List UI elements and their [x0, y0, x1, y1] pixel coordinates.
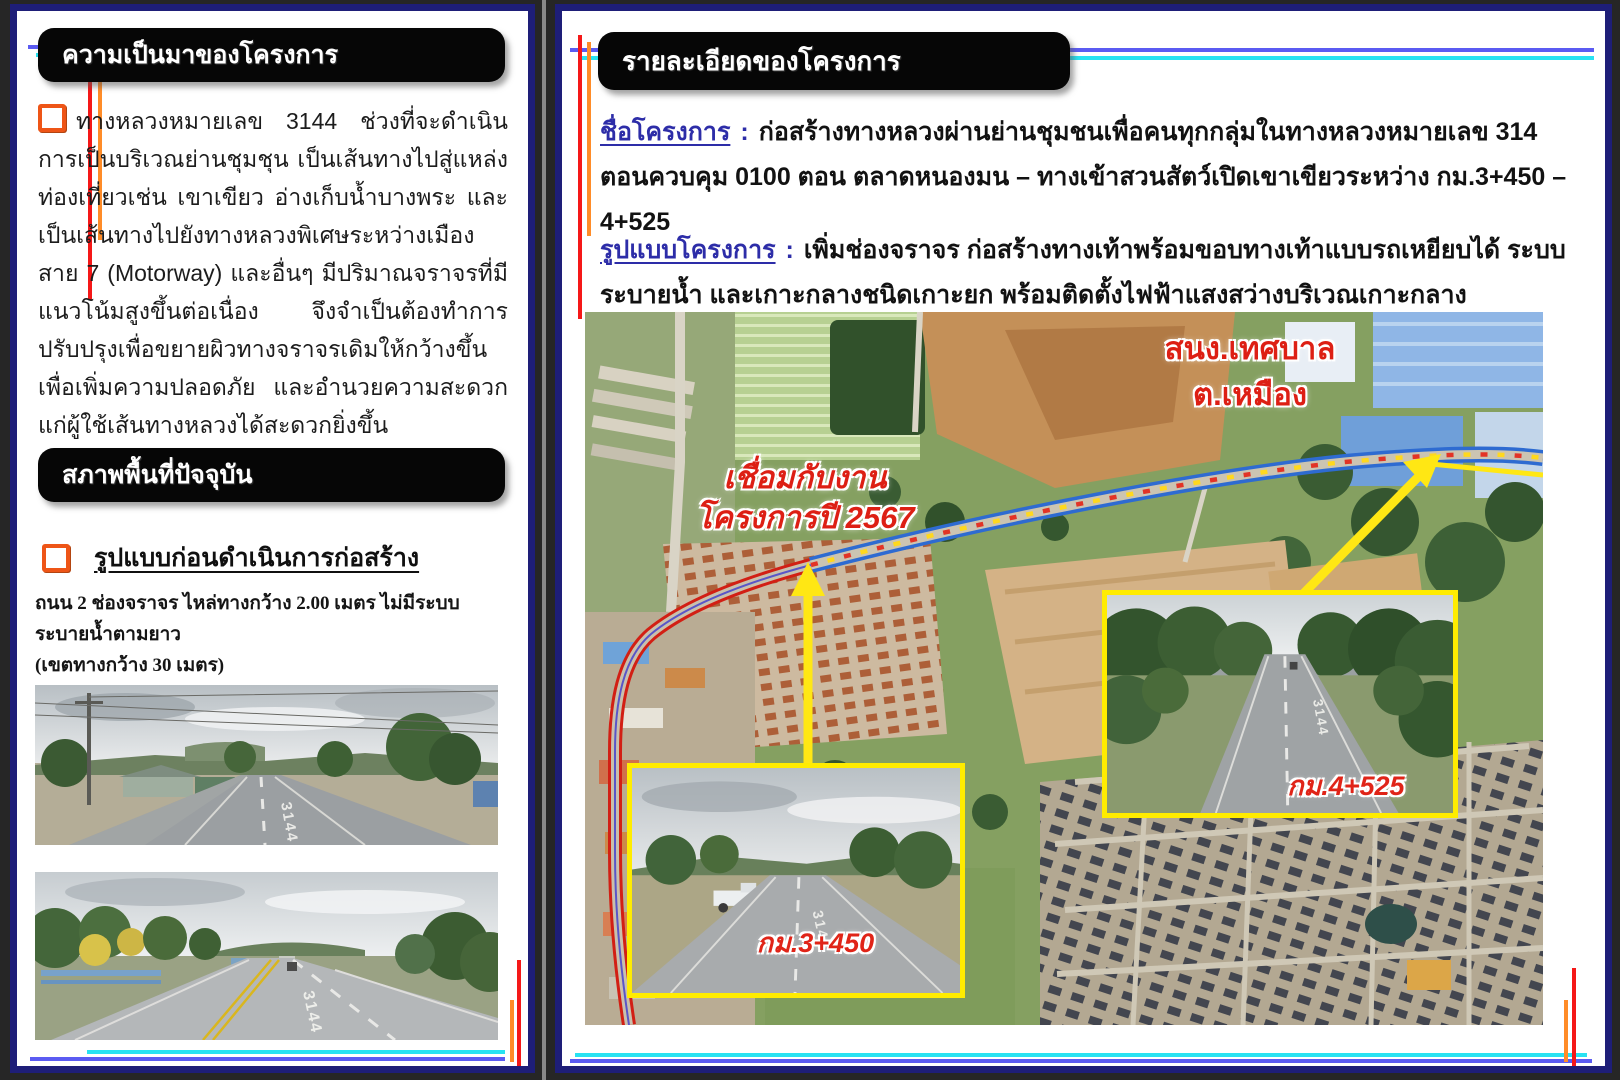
- photo-existing-road-2: 3144: [35, 872, 498, 1040]
- project-name-label: ชื่อโครงการ: [600, 118, 730, 146]
- section-header-background: ความเป็นมาของโครงการ: [38, 28, 505, 82]
- project-name-block: ชื่อโครงการ:ก่อสร้างทางหลวงผ่านย่านชุมชน…: [600, 110, 1590, 245]
- page-gap-divider: [542, 0, 546, 1080]
- road-photo-illustration: 3144: [35, 685, 498, 845]
- inset-photo-km4525: 3144 กม.4+525: [1102, 590, 1458, 818]
- satellite-map: สนง.เทศบาล ต.เหมือง เชื่อมกับงาน โครงการ…: [585, 312, 1543, 1025]
- project-form-block: รูปแบบโครงการ:เพิ่มช่องจราจร ก่อสร้างทาง…: [600, 228, 1590, 318]
- map-label-office-line1: สนง.เทศบาล: [1145, 326, 1355, 372]
- decor-line: [1564, 1000, 1568, 1062]
- page-right: รายละเอียดของโครงการ ชื่อโครงการ:ก่อสร้า…: [555, 4, 1612, 1073]
- decor-line: [1572, 968, 1576, 1066]
- subheading-before-construction: รูปแบบก่อนดำเนินการก่อสร้าง: [42, 538, 419, 578]
- intro-paragraph: ทางหลวงหมายเลข 3144 ช่วงที่จะดำเนินการเป…: [38, 102, 508, 444]
- subheading-text: รูปแบบก่อนดำเนินการก่อสร้าง: [94, 538, 419, 578]
- intro-text: ทางหลวงหมายเลข 3144 ช่วงที่จะดำเนินการเป…: [38, 108, 508, 438]
- decor-line: [575, 1053, 1587, 1057]
- section-header-current-site: สภาพพื้นที่ปัจจุบัน: [38, 448, 505, 502]
- photo-existing-road-1: 3144: [35, 685, 498, 845]
- map-label-municipal-office: สนง.เทศบาล ต.เหมือง: [1145, 326, 1355, 418]
- road-note-line1: ถนน 2 ช่องจราจร ไหล่ทางกว้าง 2.00 เมตร ไ…: [35, 588, 513, 650]
- checkbox-icon: [38, 104, 66, 132]
- decor-line: [87, 1050, 505, 1054]
- project-form-label: รูปแบบโครงการ: [600, 236, 776, 264]
- section-title-background: ความเป็นมาของโครงการ: [62, 35, 338, 75]
- section-header-details: รายละเอียดของโครงการ: [598, 32, 1070, 90]
- decor-line: [30, 1057, 505, 1061]
- section-title-current-site: สภาพพื้นที่ปัจจุบัน: [62, 455, 252, 495]
- leaflet-spread: { "page_left": { "section1_title": "ความ…: [0, 0, 1620, 1080]
- decor-line: [510, 1000, 514, 1062]
- section-title-details: รายละเอียดของโครงการ: [622, 41, 901, 82]
- map-label-connect-2567: เชื่อมกับงาน โครงการปี 2567: [690, 458, 920, 538]
- road-note-line2: (เขตทางกว้าง 30 เมตร): [35, 650, 513, 681]
- map-label-office-line2: ต.เหมือง: [1145, 372, 1355, 418]
- decor-line: [517, 960, 521, 1066]
- checkbox-icon: [42, 544, 70, 572]
- project-name-colon: :: [730, 118, 758, 146]
- inset-label-km3450: กม.3+450: [757, 921, 874, 964]
- inset-label-km4525: กม.4+525: [1287, 764, 1404, 807]
- road-photo-illustration: 3144: [35, 872, 498, 1040]
- decor-line: [587, 42, 591, 236]
- inset-photo-km3450: 3144 กม.3+450: [627, 763, 965, 998]
- map-label-connect-line2: โครงการปี 2567: [690, 498, 920, 538]
- map-label-connect-line1: เชื่อมกับงาน: [690, 458, 920, 498]
- project-form-colon: :: [776, 236, 804, 264]
- decor-line: [578, 35, 582, 319]
- decor-line: [570, 1059, 1592, 1063]
- road-note: ถนน 2 ช่องจราจร ไหล่ทางกว้าง 2.00 เมตร ไ…: [35, 588, 513, 681]
- page-left: ความเป็นมาของโครงการ ทางหลวงหมายเลข 3144…: [10, 4, 535, 1073]
